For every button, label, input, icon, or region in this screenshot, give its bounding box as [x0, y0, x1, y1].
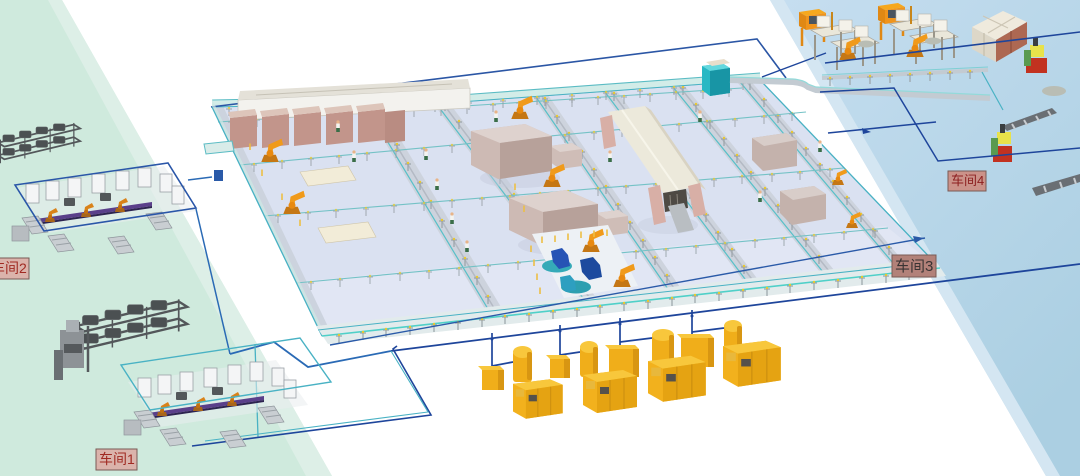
svg-text:车间3: 车间3	[895, 258, 933, 275]
svg-text:车间1: 车间1	[99, 451, 135, 467]
svg-text:车间4: 车间4	[951, 173, 984, 188]
svg-text:车间2: 车间2	[0, 260, 27, 276]
